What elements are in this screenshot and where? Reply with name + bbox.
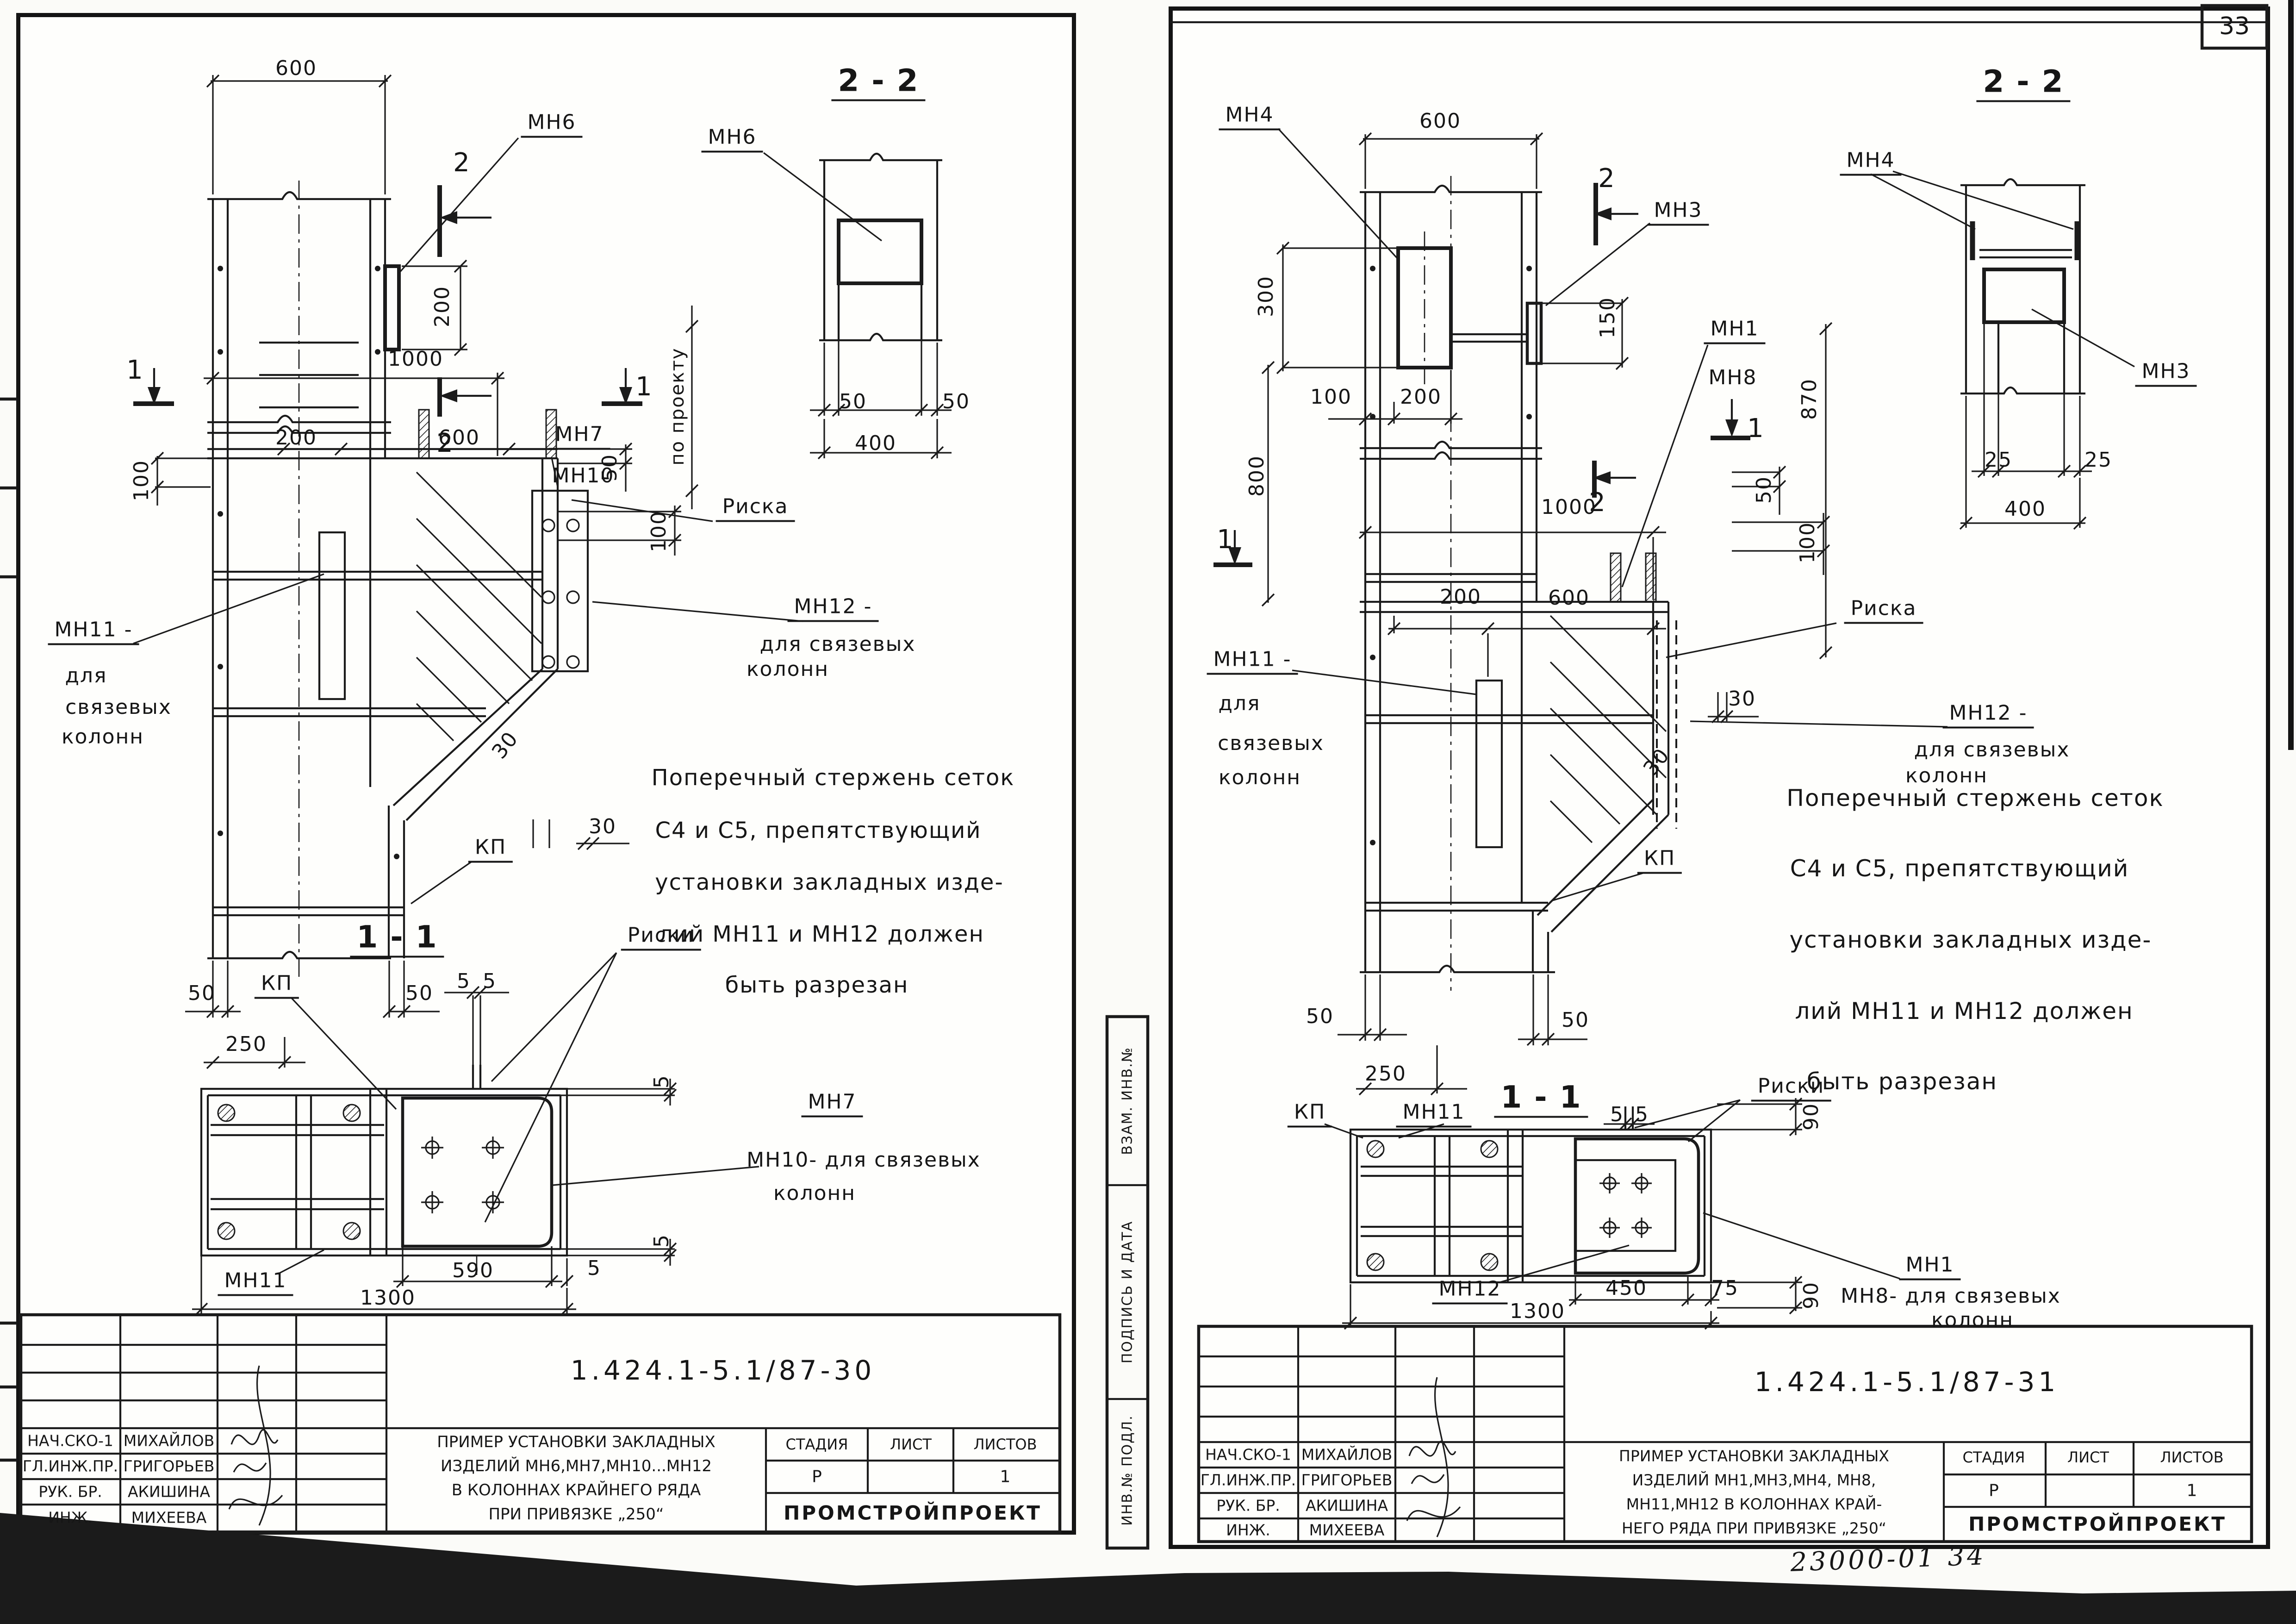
strip-podpis-data: ПОДПИСЬ И ДАТА bbox=[1120, 1221, 1136, 1363]
drawing-label: МН11 bbox=[1396, 1102, 1471, 1128]
drawing-label: колонн bbox=[1219, 768, 1301, 788]
drawing-label: МН12 - bbox=[1943, 703, 2034, 729]
sheets-value: 1 bbox=[2187, 1481, 2197, 1500]
desc-line: МН11,МН12 В КОЛОННАХ КРАЙ- bbox=[1626, 1495, 1882, 1513]
staff-name: МИХАЙЛОВ bbox=[1301, 1446, 1392, 1464]
desc-line: ИЗДЕЛИЙ МН1,МН3,МН4, МН8, bbox=[1632, 1471, 1876, 1489]
drawing-label: 1300 bbox=[1510, 1301, 1565, 1322]
staff-role: НАЧ.СКО-1 bbox=[27, 1432, 113, 1450]
strip-inv-podl: ИНВ.№ ПОДЛ. bbox=[1120, 1415, 1136, 1526]
drawing-label: 800 bbox=[1247, 455, 1267, 497]
drawing-label: КП bbox=[1288, 1102, 1332, 1128]
drawing-label: 400 bbox=[2004, 499, 2046, 519]
drawing-label: лий МН11 и МН12 должен bbox=[1795, 999, 2133, 1023]
desc-line: ПРИМЕР УСТАНОВКИ ЗАКЛАДНЫХ bbox=[1619, 1447, 1889, 1465]
drawing-label: 2 bbox=[1598, 166, 1616, 192]
sheet-header: ЛИСТ bbox=[2067, 1449, 2109, 1466]
drawing-label: колонн bbox=[1931, 1310, 2014, 1330]
drawing-label: 600 bbox=[1419, 111, 1461, 131]
drawing-label: КП bbox=[1637, 849, 1682, 874]
drawing-label: 450 bbox=[1605, 1278, 1647, 1299]
doc-number: 1.424.1-5.1/87-30 bbox=[571, 1355, 876, 1386]
desc-line: ПРИМЕР УСТАНОВКИ ЗАКЛАДНЫХ bbox=[437, 1433, 716, 1451]
drawing-label: 1 - 1 bbox=[1494, 1082, 1588, 1118]
drawing-label: МН11 - bbox=[1207, 650, 1298, 675]
strip-vzam-inv: ВЗАМ. ИНВ.№ bbox=[1120, 1047, 1136, 1155]
drawing-label: связевых bbox=[1218, 733, 1324, 754]
drawing-label: 600 bbox=[1548, 588, 1590, 608]
drawing-label: 1 bbox=[1217, 527, 1234, 553]
drawing-label: МН12 bbox=[1432, 1279, 1507, 1305]
drawing-label: 870 bbox=[1799, 378, 1820, 420]
drawing-label: 200 bbox=[1440, 587, 1481, 607]
staff-name: ГРИГОРЬЕВ bbox=[124, 1457, 215, 1475]
drawing-label: МН4 bbox=[1840, 150, 1901, 176]
drawing-label: 2 - 2 bbox=[1976, 67, 2070, 102]
drawing-label: МН3 bbox=[2135, 362, 2196, 387]
org-name: ПРОМСТРОЙПРОЕКТ bbox=[784, 1502, 1042, 1524]
doc-number: 1.424.1-5.1/87-31 bbox=[1755, 1366, 2060, 1398]
org-name: ПРОМСТРОЙПРОЕКТ bbox=[1968, 1513, 2227, 1536]
staff-role: РУК. БР. bbox=[38, 1483, 102, 1501]
drawing-label: 90 bbox=[1801, 1103, 1822, 1131]
drawing-label: Риски bbox=[1751, 1076, 1831, 1102]
staff-role: НАЧ.СКО-1 bbox=[1205, 1446, 1291, 1464]
stage-header: СТАДИЯ bbox=[1963, 1449, 2025, 1466]
staff-role: ГЛ.ИНЖ.ПР. bbox=[1201, 1471, 1296, 1489]
drawing-label: 30 bbox=[1640, 745, 1674, 779]
page-number: 33 bbox=[2219, 12, 2250, 40]
desc-line: ПРИ ПРИВЯЗКЕ „250“ bbox=[488, 1505, 664, 1524]
stage-value: Р bbox=[812, 1468, 822, 1487]
drawing-label: 50 bbox=[1306, 1006, 1334, 1027]
staff-name: МИХЕЕВА bbox=[131, 1509, 207, 1527]
drawing-label: МН1 bbox=[1704, 319, 1765, 344]
drawing-label: для связевых bbox=[1914, 740, 2070, 760]
sheets-header: ЛИСТОВ bbox=[973, 1436, 1037, 1453]
staff-name: МИХЕЕВА bbox=[1309, 1521, 1385, 1539]
drawing-label: 200 bbox=[1400, 387, 1442, 407]
staff-role: ИНЖ. bbox=[1226, 1521, 1270, 1539]
drawing-label: МН1 bbox=[1899, 1255, 1960, 1280]
staff-name: АКИШИНА bbox=[1306, 1497, 1388, 1515]
desc-line: ИЗДЕЛИЙ МН6,МН7,МН10...МН12 bbox=[441, 1457, 712, 1475]
drawing-label: 100 bbox=[1310, 387, 1352, 407]
stage-header: СТАДИЯ bbox=[786, 1436, 848, 1453]
drawing-label: МН8 bbox=[1708, 368, 1757, 388]
drawing-label: 30 bbox=[1728, 689, 1756, 709]
drawing-label: Поперечный стержень сеток bbox=[1786, 787, 2164, 810]
drawing-label: 100 bbox=[1798, 522, 1818, 563]
scanned-drawing-page: 60022МН620010002006001001150по проекту10… bbox=[0, 0, 2296, 1624]
drawing-label: для bbox=[1218, 693, 1260, 714]
drawing-label: 5 bbox=[1610, 1105, 1624, 1125]
drawing-label: 25 bbox=[1985, 450, 2012, 470]
drawing-label: МН8- для связевых bbox=[1841, 1286, 2061, 1306]
desc-line: В КОЛОННАХ КРАЙНЕГО РЯДА bbox=[452, 1481, 701, 1499]
drawing-label: МН3 bbox=[1647, 200, 1709, 226]
drawing-label: 50 bbox=[1754, 476, 1774, 504]
drawing-label: 1 bbox=[1747, 416, 1765, 442]
drawing-label: 300 bbox=[1256, 275, 1276, 317]
drawing-label: МН4 bbox=[1219, 105, 1280, 131]
drawing-label: 5 bbox=[1635, 1105, 1649, 1125]
drawing-label: быть разрезан bbox=[1807, 1070, 1997, 1093]
sheets-header: ЛИСТОВ bbox=[2160, 1449, 2223, 1466]
drawing-label: установки закладных изде- bbox=[1790, 928, 2152, 951]
drawing-label: 250 bbox=[1365, 1064, 1406, 1084]
drawing-label: 50 bbox=[1562, 1010, 1589, 1031]
stage-value: Р bbox=[1989, 1481, 1999, 1500]
staff-name: АКИШИНА bbox=[128, 1483, 210, 1501]
sheet-header: ЛИСТ bbox=[890, 1436, 932, 1453]
drawing-label: Риска bbox=[1844, 599, 1923, 624]
staff-name: ГРИГОРЬЕВ bbox=[1301, 1471, 1393, 1489]
drawing-label: С4 и С5, препятствующий bbox=[1790, 857, 2129, 880]
staff-role: РУК. БР. bbox=[1216, 1497, 1280, 1515]
staff-role: ГЛ.ИНЖ.ПР. bbox=[23, 1457, 118, 1475]
drawing-label: 150 bbox=[1598, 297, 1618, 338]
drawing-label: 1000 bbox=[1541, 497, 1597, 518]
sheets-value: 1 bbox=[1000, 1468, 1011, 1487]
drawing-label: 75 bbox=[1711, 1278, 1739, 1299]
drawing-label: 25 bbox=[2084, 450, 2112, 470]
drawing-label: колонн bbox=[1905, 766, 1988, 786]
drawing-label: 90 bbox=[1801, 1281, 1822, 1309]
desc-line: НЕГО РЯДА ПРИ ПРИВЯЗКЕ „250“ bbox=[1622, 1519, 1886, 1537]
staff-role: ИНЖ. bbox=[48, 1509, 93, 1527]
staff-name: МИХАЙЛОВ bbox=[124, 1432, 214, 1450]
